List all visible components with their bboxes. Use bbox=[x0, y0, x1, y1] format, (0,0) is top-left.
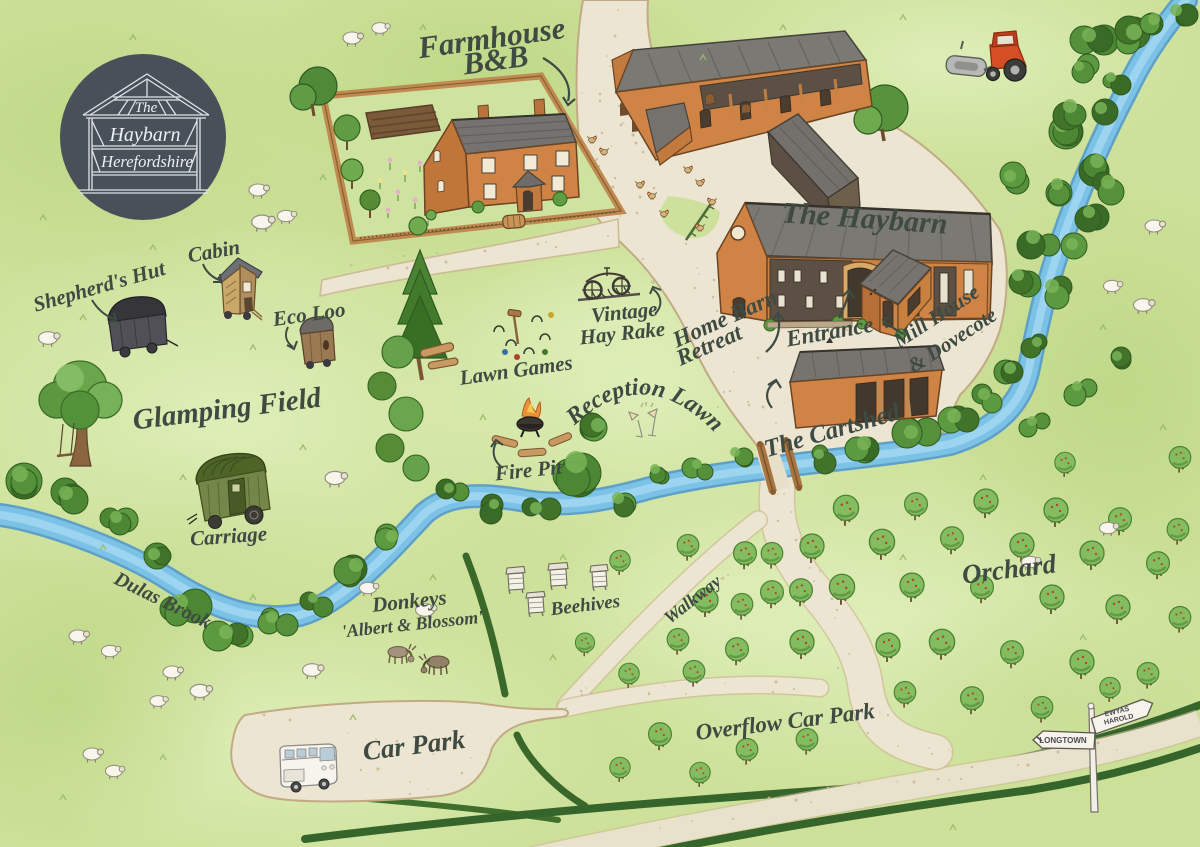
svg-text:LONGTOWN: LONGTOWN bbox=[1039, 736, 1087, 745]
svg-text:Haybarn: Haybarn bbox=[108, 124, 180, 146]
svg-text:Herefordshire: Herefordshire bbox=[100, 152, 193, 171]
svg-text:The: The bbox=[135, 100, 158, 116]
